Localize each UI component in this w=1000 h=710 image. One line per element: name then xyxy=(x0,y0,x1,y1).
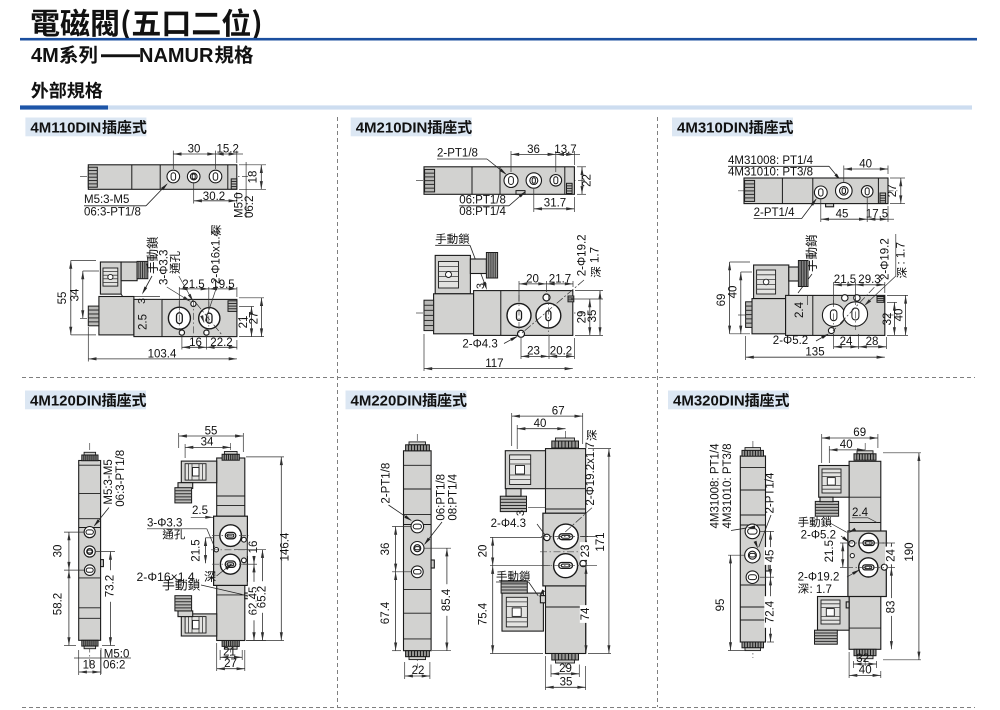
svg-text:4M31008: PT1/4: 4M31008: PT1/4 xyxy=(710,443,722,529)
svg-text:40: 40 xyxy=(859,665,872,677)
svg-text:: 1.7: : 1.7 xyxy=(810,584,832,596)
svg-text:95: 95 xyxy=(715,599,727,612)
svg-text:190: 190 xyxy=(904,542,916,561)
svg-text:4M31010: PT3/8: 4M31010: PT3/8 xyxy=(722,443,734,528)
svg-text:4M320DIN: 4M320DIN xyxy=(673,393,745,410)
svg-text:72.4: 72.4 xyxy=(765,600,777,623)
svg-text:69: 69 xyxy=(853,427,866,439)
svg-text:32: 32 xyxy=(856,653,869,665)
svg-text:2-Φ19.2: 2-Φ19.2 xyxy=(798,571,840,583)
svg-text:2-Φ5.2: 2-Φ5.2 xyxy=(801,529,836,541)
svg-text:40: 40 xyxy=(840,439,853,451)
svg-text:2-PT1/4: 2-PT1/4 xyxy=(764,472,776,514)
svg-text:83: 83 xyxy=(886,601,898,614)
svg-text:2.4: 2.4 xyxy=(852,507,869,519)
svg-text:21.5: 21.5 xyxy=(824,540,836,562)
svg-text:24: 24 xyxy=(886,549,898,562)
svg-text:45: 45 xyxy=(765,550,777,563)
